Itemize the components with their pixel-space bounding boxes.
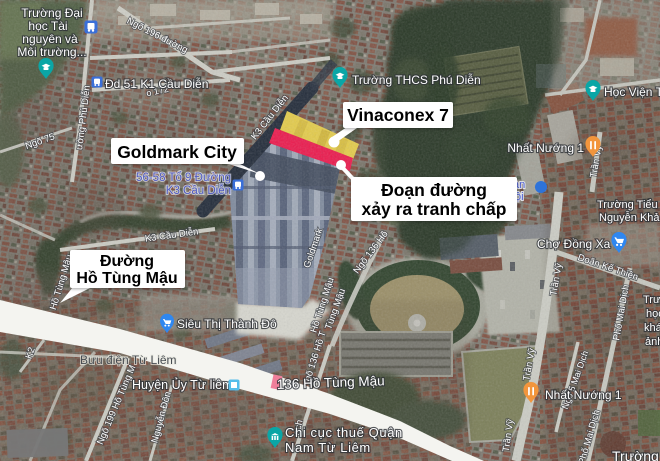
svg-text:56-58 Tổ 9 Đường: 56-58 Tổ 9 Đường	[136, 172, 231, 184]
svg-text:Trường THCS Phú Diễn: Trường THCS Phú Diễn	[352, 72, 481, 87]
svg-text:Nguyễn Khả: Nguyễn Khả	[599, 211, 660, 224]
svg-text:nguyên và: nguyên và	[22, 32, 78, 46]
svg-text:ảnh: ảnh	[645, 336, 660, 348]
svg-text:Chợ Đồng Xa: Chợ Đồng Xa	[537, 237, 611, 251]
svg-text:Nhất Nướng 1: Nhất Nướng 1	[507, 141, 584, 155]
svg-text:Hồ Tùng Mậu: Hồ Tùng Mậu	[76, 270, 177, 287]
svg-text:K3 Cầu Diễn: K3 Cầu Diễn	[166, 184, 231, 197]
svg-text:Nam Từ Liêm: Nam Từ Liêm	[285, 440, 371, 455]
svg-text:Bưu điện Từ Liêm: Bưu điện Từ Liêm	[80, 353, 177, 367]
svg-text:khách: khách	[644, 322, 660, 334]
svg-text:Vinaconex 7: Vinaconex 7	[347, 105, 449, 125]
svg-text:Môi trường...: Môi trường...	[17, 45, 86, 59]
svg-text:Siêu Thị Thành Đô: Siêu Thị Thành Đô	[177, 317, 277, 331]
svg-text:Trường: Trường	[612, 448, 659, 461]
svg-text:Học Viện Tà: Học Viện Tà	[604, 85, 660, 99]
svg-text:Đd 51 K1 Cầu Diễn: Đd 51 K1 Cầu Diễn	[105, 76, 208, 91]
svg-text:Trường Đại: Trường Đại	[21, 6, 82, 20]
svg-text:Trường Tiểu: Trường Tiểu	[597, 199, 658, 211]
svg-text:Chi cục thuế Quận: Chi cục thuế Quận	[285, 425, 403, 440]
svg-text:Nhất Nướng 1: Nhất Nướng 1	[545, 388, 622, 402]
svg-text:Trường: Trường	[643, 294, 660, 306]
svg-text:học: học	[646, 308, 660, 320]
svg-text:Đường: Đường	[100, 253, 154, 270]
svg-text:Huyện Ủy Từ liêm: Huyện Ủy Từ liêm	[132, 377, 233, 392]
svg-text:Đoạn đường: Đoạn đường	[381, 180, 487, 200]
svg-text:học Tài: học Tài	[28, 19, 67, 33]
svg-text:xảy ra tranh chấp: xảy ra tranh chấp	[362, 199, 507, 219]
svg-text:Goldmark City: Goldmark City	[117, 142, 237, 162]
